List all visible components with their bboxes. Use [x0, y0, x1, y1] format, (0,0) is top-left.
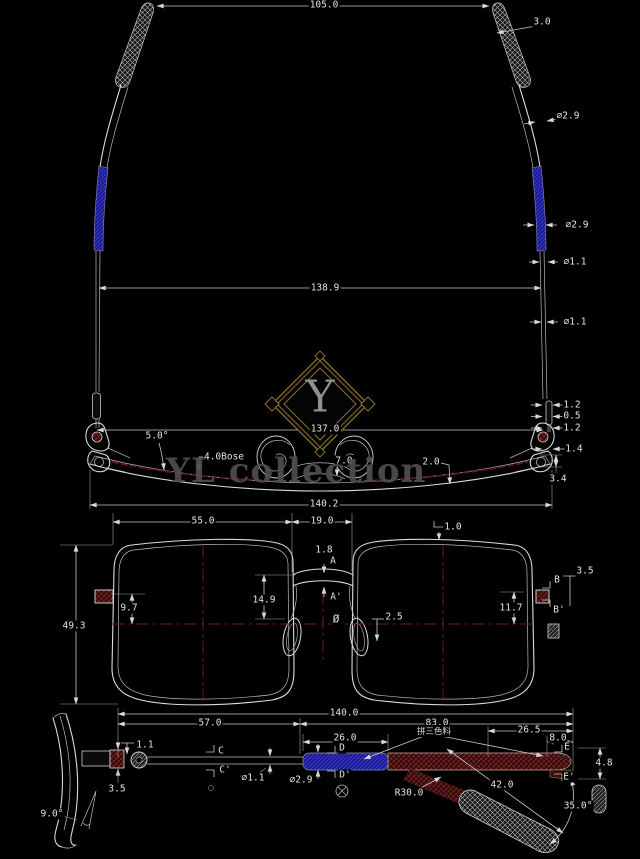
side-red-section [388, 753, 571, 770]
dim-lens-height: 49.3 [62, 621, 87, 632]
dim-wire-dia-upper: ⌀1.1 [563, 257, 588, 268]
right-temple-tip [493, 3, 531, 88]
dim-temple-dia-upper: ⌀2.9 [556, 111, 581, 122]
dim-temple-tip-span: 105.0 [309, 0, 340, 11]
dim-wire-dia-lower: ⌀1.1 [563, 317, 588, 328]
dim-front-to-hinge: 57.0 [198, 718, 223, 729]
label-section-c-prime: C' [218, 765, 231, 776]
technical-drawing-sheet: 105.0 3.0 ⌀2.9 ⌀2.9 ⌀1.1 138.9 ⌀1.1 1.2 … [0, 0, 640, 859]
label-section-d-prime: D' [338, 770, 351, 781]
label-section-b-prime: B' [552, 605, 565, 616]
dim-endpiece-width: 1.4 [564, 444, 583, 455]
right-temple-sleeve-detail [546, 401, 552, 425]
symbol-diameter: Ø [332, 613, 341, 626]
label-section-c: C [217, 746, 225, 757]
dim-temple-dia-sleeve: ⌀2.9 [565, 220, 590, 231]
label-section-a-prime: A' [329, 592, 342, 603]
dim-hinge-gap: 1.1 [135, 740, 154, 751]
dim-drop-length: 42.0 [490, 780, 515, 791]
left-temple-tip [116, 3, 154, 88]
dim-drop-angle: 35.0° [563, 801, 594, 812]
dim-hinge-height: 3.5 [107, 784, 126, 795]
dim-tip-width: 3.0 [532, 17, 551, 28]
side-blue-sleeve [303, 753, 388, 770]
dim-overall-length: 140.0 [329, 708, 360, 719]
side-hinge-red-block [110, 750, 124, 768]
dim-frame-height: 3.4 [548, 474, 567, 485]
watermark-monogram: Y [305, 371, 334, 422]
dim-sleeve-dia-side: ⌀2.9 [289, 775, 314, 786]
label-section-e: E [563, 742, 571, 753]
right-hinge-block [536, 590, 549, 603]
bridge [293, 569, 353, 575]
section-mark-square [548, 624, 559, 638]
dim-bend-radius: R30.0 [394, 788, 425, 799]
right-temple-blue-sleeve [532, 166, 546, 251]
dim-pad-gap: 2.5 [384, 612, 403, 623]
label-section-b: B [553, 575, 561, 586]
dim-hinge-height-pos: 9.7 [119, 603, 138, 614]
dim-overall-width: 140.2 [309, 499, 340, 510]
dim-wire-dia-side: ⌀1.1 [241, 773, 266, 784]
label-section-e-prime: E' [562, 772, 575, 783]
dim-bridge-width: 19.0 [310, 516, 335, 527]
left-temple-sleeve-detail [93, 393, 101, 419]
dim-flare-angle: 5.0° [145, 431, 170, 442]
side-hinge-bar [82, 751, 110, 766]
dim-endpiece-step-2: 0.5 [562, 411, 581, 422]
dim-lens-width: 55.0 [191, 516, 216, 527]
dim-tip-section: 26.5 [517, 725, 542, 736]
dim-endpiece-step-1: 1.2 [562, 400, 581, 411]
dim-open-temple-span: 138.9 [310, 283, 341, 294]
section-e-oval [592, 785, 606, 813]
dim-endpiece-size: 3.5 [575, 566, 594, 577]
temple-tip-side [459, 790, 559, 853]
dim-end-height: 4.8 [594, 758, 613, 769]
watermark-brand: YL collection [166, 451, 427, 491]
label-section-d: D [338, 743, 346, 754]
label-section-a: A [329, 556, 337, 567]
dim-bridge-thickness: 1.8 [314, 545, 333, 556]
left-hinge-block [95, 590, 113, 603]
dim-endpiece-drop: 11.7 [499, 603, 524, 614]
left-temple-blue-sleeve [94, 166, 108, 251]
dim-endpiece-step-3: 1.2 [562, 423, 581, 434]
dim-bridge-drop: 14.9 [252, 595, 277, 606]
note-material: 拼三色料 [416, 725, 452, 737]
lens-side-profile [53, 714, 78, 849]
dim-rim-thickness: 1.0 [443, 522, 462, 533]
dim-pantoscopic-tilt: 9.0° [40, 809, 65, 820]
dim-hinge-span: 137.0 [310, 424, 341, 435]
